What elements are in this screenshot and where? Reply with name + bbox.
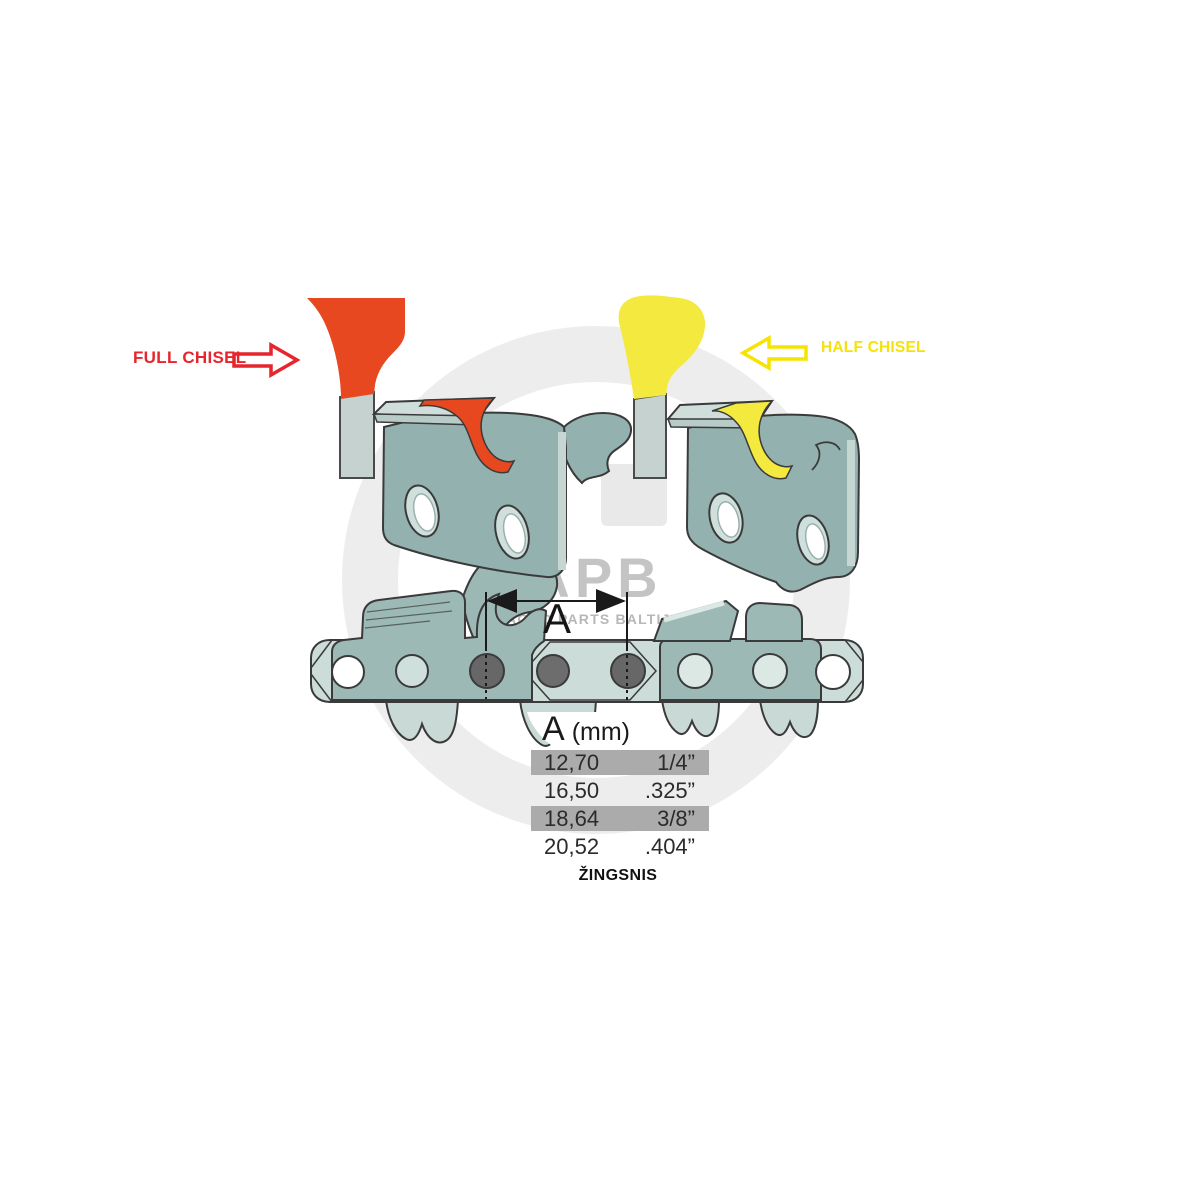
pitch-mm-value: 16,50 [544, 778, 599, 804]
full-chisel-label: FULL CHISEL [133, 348, 247, 368]
half-chisel-cutter-link [668, 401, 859, 592]
pitch-table-row: 12,701/4” [531, 750, 709, 775]
chain-rivet [537, 655, 569, 687]
pitch-inch-value: .404” [645, 834, 695, 860]
half-chisel-arrow-icon [743, 338, 806, 368]
half-chisel-label: HALF CHISEL [821, 339, 926, 357]
pitch-table: A (mm) 12,701/4”16,50.325”18,643/8”20,52… [520, 710, 716, 885]
pitch-mm-value: 20,52 [544, 834, 599, 860]
pitch-dimension-label: A [543, 595, 571, 643]
pitch-mm-value: 12,70 [544, 750, 599, 776]
pitch-table-row: 16,50.325” [531, 778, 709, 803]
chain-hole [753, 654, 787, 688]
half-chisel-stem [634, 394, 666, 478]
pitch-inch-value: .325” [645, 778, 695, 804]
chain-hole [332, 656, 364, 688]
chain-diagram-graphic: APB AGRO PARTS BALTIJA [0, 0, 1188, 1188]
pitch-table-row: 18,643/8” [531, 806, 709, 831]
diagram-canvas: APB AGRO PARTS BALTIJA [0, 0, 1188, 1188]
pitch-inch-value: 1/4” [657, 750, 695, 776]
pitch-table-rows: 12,701/4”16,50.325”18,643/8”20,52.404” [520, 750, 716, 859]
pitch-mm-value: 18,64 [544, 806, 599, 832]
chain-hole [396, 655, 428, 687]
pitch-unit: (mm) [572, 718, 630, 747]
pitch-symbol: A [542, 710, 565, 749]
full-chisel-stem [340, 392, 374, 478]
pitch-inch-value: 3/8” [657, 806, 695, 832]
pitch-table-row: 20,52.404” [531, 834, 709, 859]
pitch-table-header: A (mm) [542, 710, 716, 748]
full-chisel-shape [307, 298, 405, 399]
chain-hole [678, 654, 712, 688]
pitch-caption: ŽINGSNIS [520, 867, 716, 885]
chain-hole [816, 655, 850, 689]
